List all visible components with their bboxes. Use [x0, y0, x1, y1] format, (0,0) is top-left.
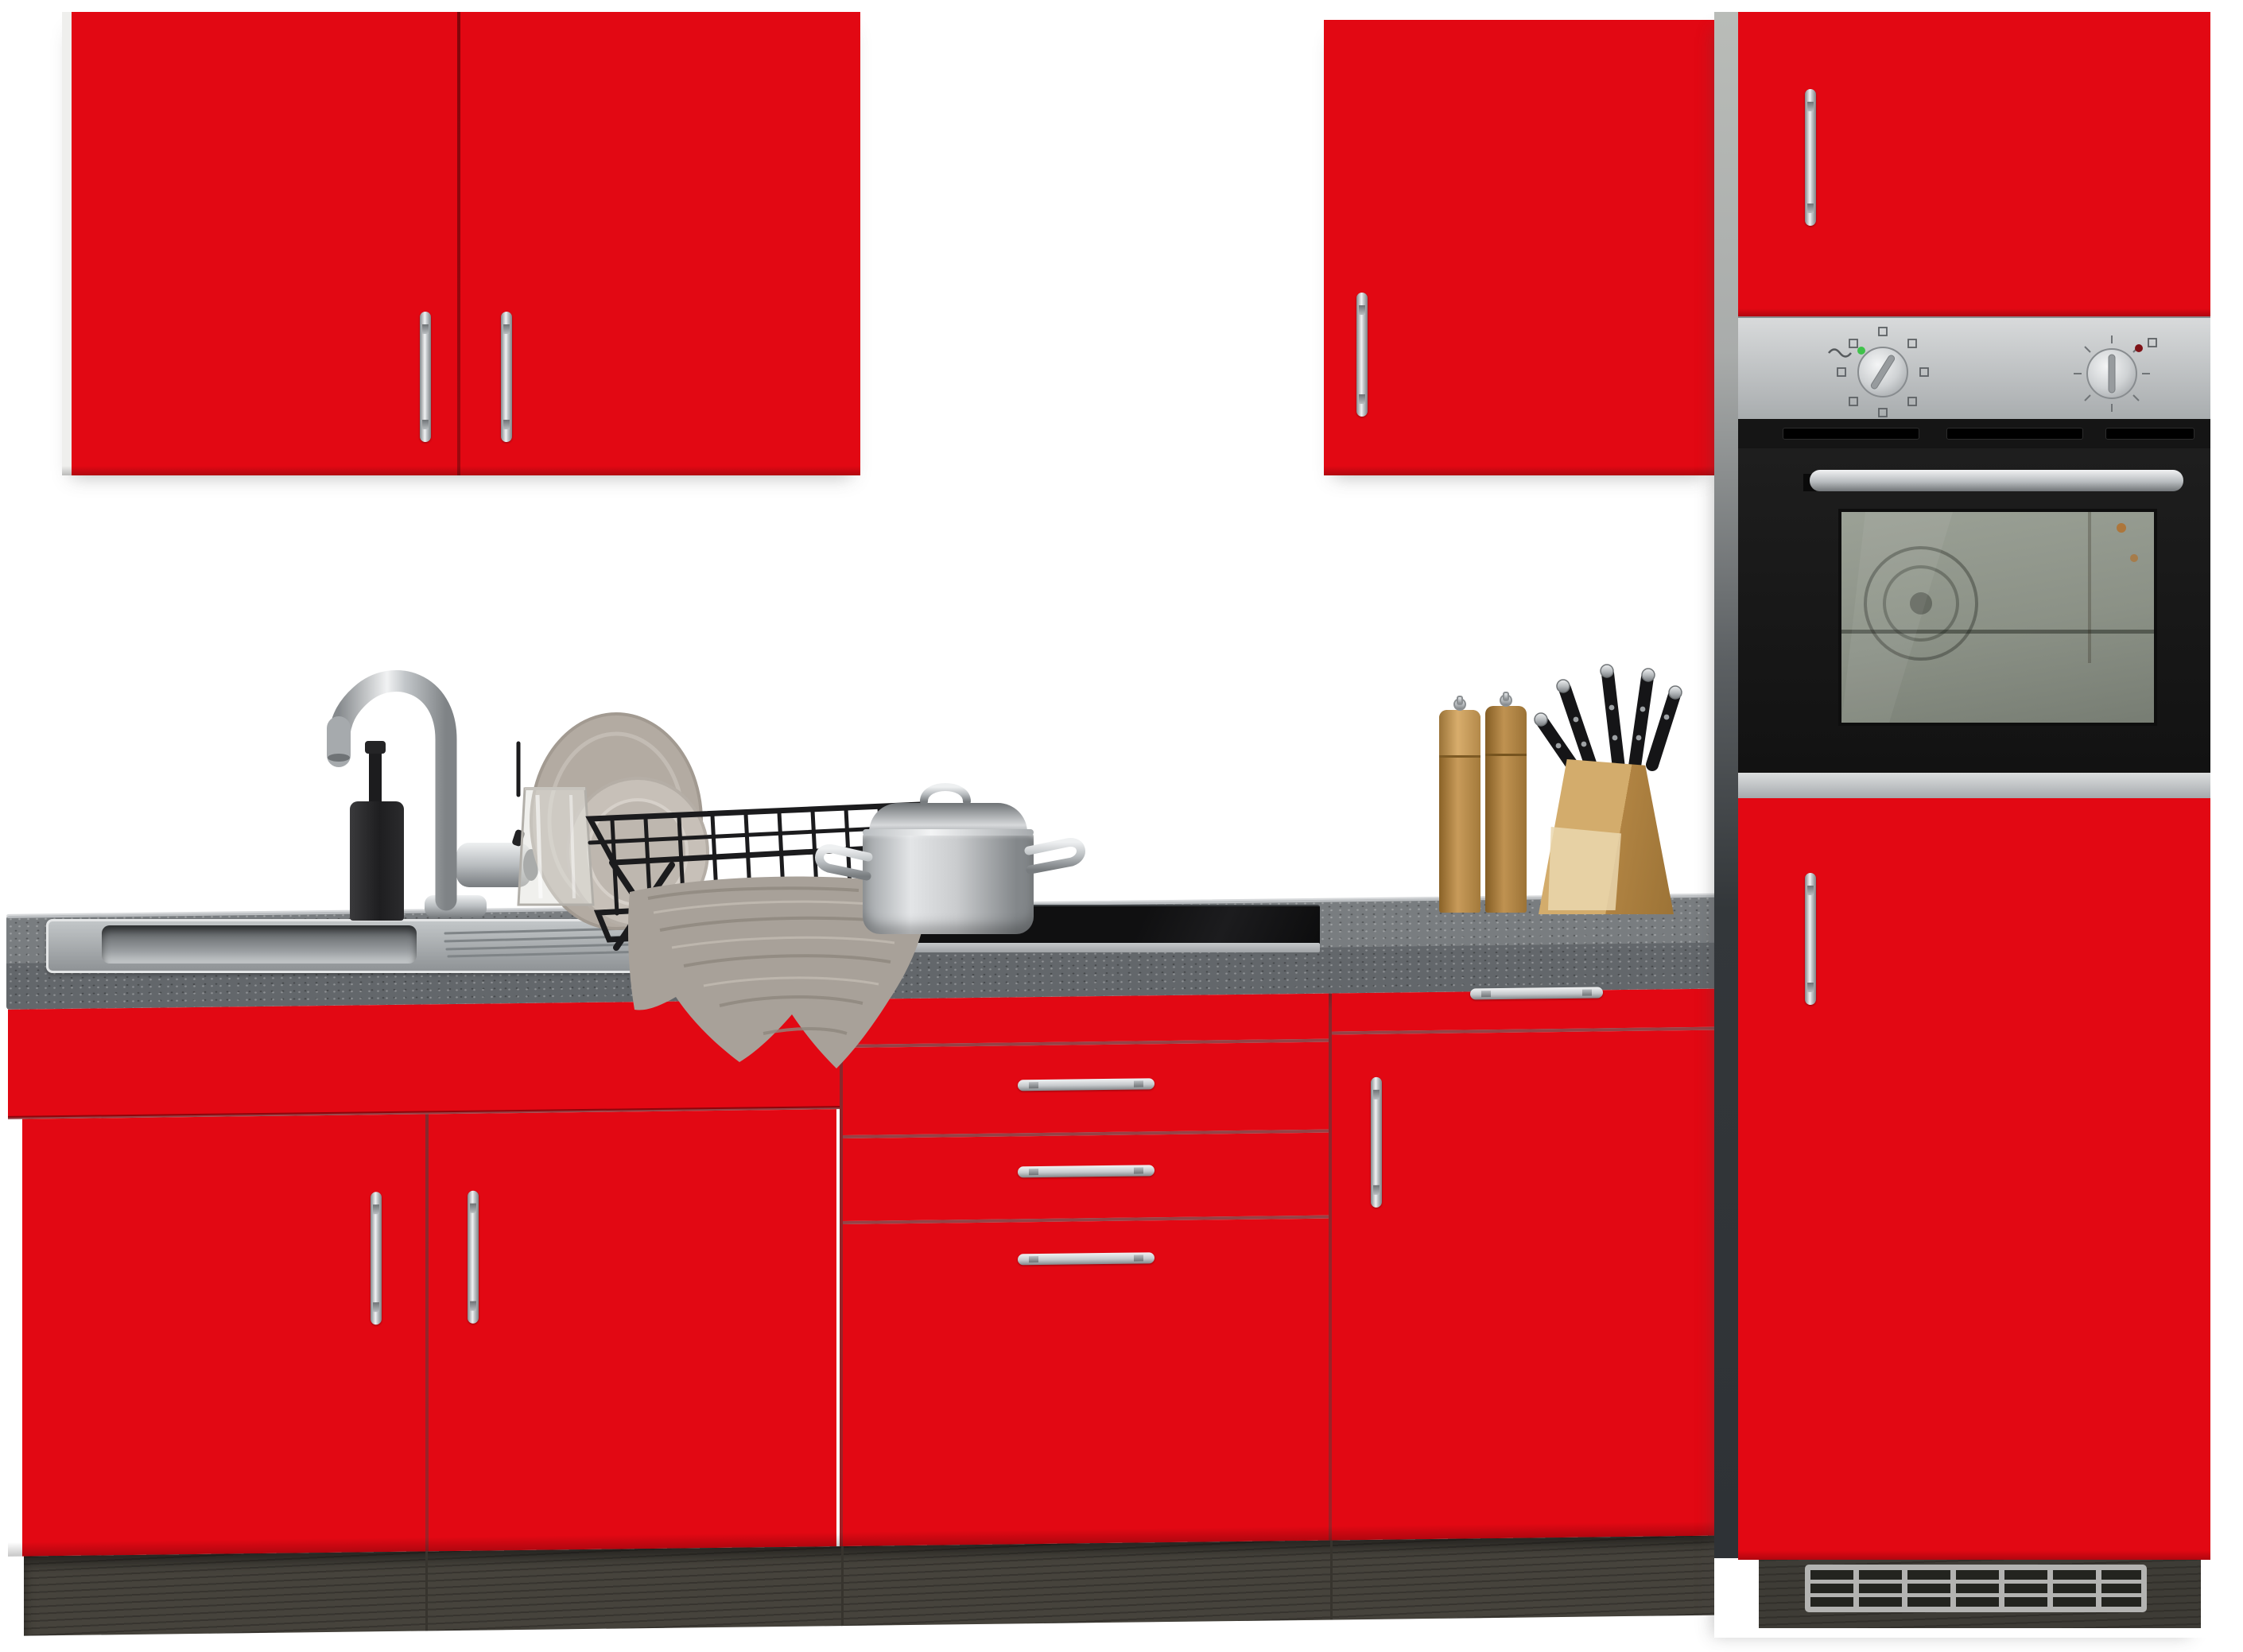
ventilation-grille	[1805, 1565, 2147, 1612]
oven-lower-trim	[1738, 773, 2210, 798]
sink-cabinet-door-right	[429, 1109, 836, 1551]
wall-cabinet-right	[1324, 20, 1714, 475]
oven-light-glint	[2117, 523, 2126, 533]
right-cabinet-door	[1332, 1030, 1738, 1540]
tall-unit-side-panel	[1714, 12, 1738, 1558]
soap-dispenser-nozzle	[365, 741, 386, 754]
tall-top-door	[1738, 12, 2210, 316]
vent-slot	[1946, 428, 2083, 440]
oven-door-handle	[1810, 470, 2183, 491]
door-handle	[501, 312, 512, 442]
door-bottom-shadow	[1738, 1550, 2210, 1560]
door-handle	[1371, 1077, 1382, 1208]
soap-dispenser-pump	[369, 752, 382, 805]
oven-window	[1838, 509, 2157, 726]
plinth-joint	[425, 1551, 428, 1631]
vent-slot	[1783, 428, 1919, 440]
sink-bowl	[102, 925, 417, 964]
door-handle	[1805, 89, 1816, 226]
oven-vent-band	[1738, 419, 2210, 448]
oven-door	[1738, 448, 2210, 773]
wall-cabinet-left	[62, 12, 860, 475]
drawer-handle	[1018, 1078, 1154, 1091]
door-bottom-shadow	[1738, 308, 2210, 316]
red-indicator-light	[2135, 344, 2143, 352]
wall-door-left	[72, 12, 457, 475]
drawer-unit-top-front	[843, 994, 1329, 1045]
knife-block-light-face	[1548, 827, 1621, 910]
vent-slot	[2105, 428, 2194, 440]
wall-door-right	[462, 12, 860, 475]
cabinet-bottom-shadow	[62, 466, 860, 475]
heat-icon	[2148, 339, 2156, 347]
door-handle	[468, 1191, 479, 1324]
spice-mill-cap	[1485, 706, 1527, 756]
cooktop-steel-trim	[863, 943, 1320, 952]
oven-panel-controls	[1738, 318, 2210, 421]
oven-control-panel	[1738, 316, 2210, 422]
drawer-handle	[1470, 987, 1603, 999]
door-handle	[1805, 873, 1816, 1005]
sink-cabinet-door-seam	[425, 1114, 429, 1551]
cabinet-bottom-shadow	[1324, 466, 1714, 475]
green-indicator-light	[1857, 347, 1865, 355]
cabinet-side-light-edge	[62, 12, 72, 475]
pot-body	[863, 831, 1034, 934]
power-wave-icon	[1829, 350, 1851, 357]
drawer-handle	[1018, 1165, 1154, 1177]
drawer-front	[843, 1219, 1329, 1546]
pot-rim	[863, 829, 1034, 836]
soap-dispenser-body	[350, 801, 404, 921]
plinth-joint	[841, 1546, 844, 1626]
kitchen-product-photo	[0, 0, 2243, 1652]
drawer-handle	[1018, 1252, 1154, 1265]
tall-oven-unit	[1714, 12, 2210, 1638]
wall-door-seam	[457, 12, 460, 475]
door-handle	[1356, 293, 1368, 417]
spice-mill-cap	[1439, 710, 1480, 758]
oven-window-interior	[1841, 512, 2154, 723]
sink-cabinet-door-left	[22, 1114, 425, 1556]
door-handle	[371, 1192, 382, 1324]
plinth-joint	[1330, 1541, 1333, 1620]
tall-lower-door	[1738, 798, 2210, 1560]
door-handle	[420, 312, 431, 442]
sink-cabinet-apron	[8, 999, 840, 1118]
